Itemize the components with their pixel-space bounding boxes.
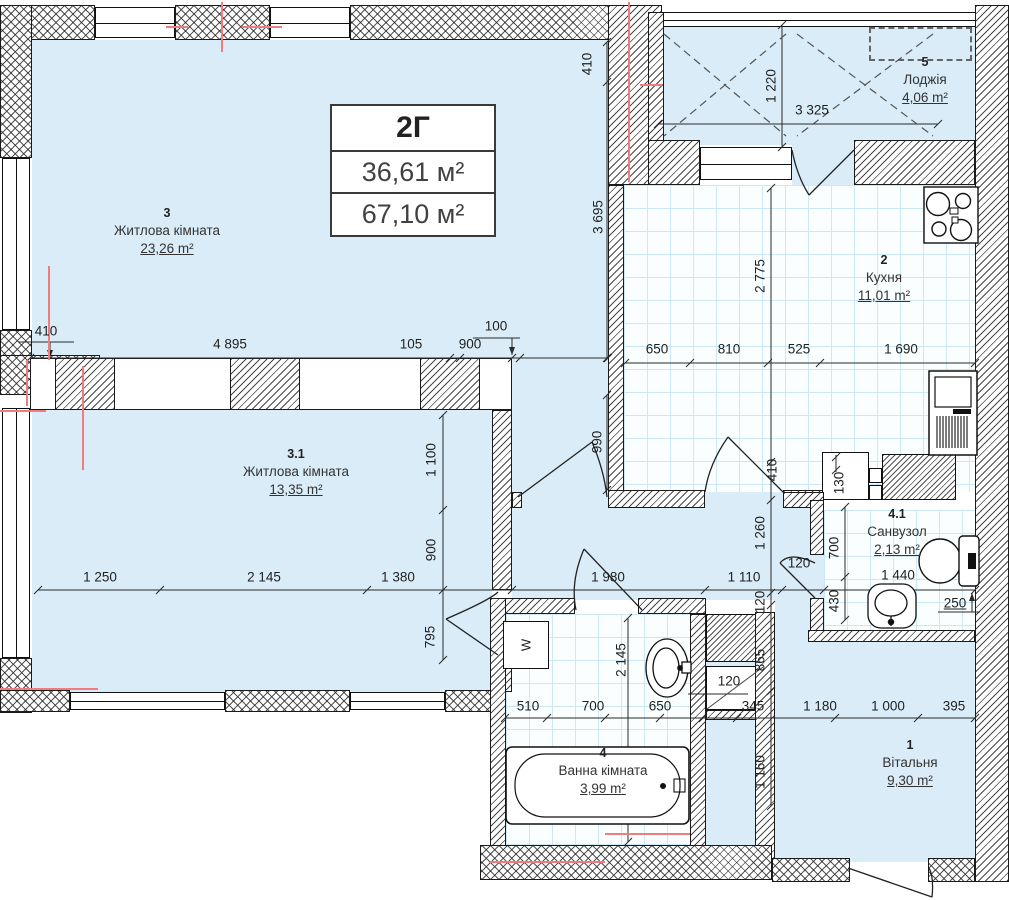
dim-label: 525 — [788, 342, 811, 357]
room-number: 4 — [558, 745, 647, 762]
toilet — [919, 536, 979, 586]
dim-label: 865 — [753, 649, 768, 672]
centerline-mark — [166, 26, 188, 28]
entrance-door — [848, 868, 933, 897]
dim-label: 1 100 — [424, 443, 439, 477]
centerline-mark — [640, 84, 662, 86]
centerline-mark — [628, 2, 630, 182]
total-area-value: 67,10 м² — [332, 194, 494, 235]
dim-label: 410 — [580, 53, 595, 76]
plan-linework — [0, 0, 1009, 900]
centerline-mark — [605, 833, 690, 835]
kitchen-appliance — [929, 371, 977, 455]
room-name: Житлова кімната — [243, 463, 349, 481]
room-area: 11,01 m² — [858, 287, 910, 305]
apartment-type-label: 2Г — [332, 106, 494, 152]
room-name: Кухня — [858, 269, 910, 287]
room-name: Санвузол — [867, 523, 927, 541]
centerline-mark — [0, 410, 46, 412]
room-area: 4,06 m² — [902, 89, 948, 107]
room-area: 13,35 m² — [243, 481, 349, 499]
room-number: 5 — [902, 54, 948, 71]
room-label-hall: 1 Вітальня 9,30 m² — [882, 737, 937, 790]
dim-label: 2 775 — [753, 259, 768, 293]
dim-label: 1 380 — [381, 570, 415, 585]
room-name: Лоджія — [902, 71, 948, 89]
dim-label: 1 690 — [884, 342, 918, 357]
room-3-1-door — [446, 592, 498, 655]
room-area: 3,99 m² — [558, 780, 647, 798]
dim-label: 345 — [742, 699, 765, 714]
dim-label: 130 — [832, 472, 847, 495]
room-number: 2 — [858, 252, 910, 269]
dim-label: 1 220 — [764, 69, 779, 103]
dim-label: 650 — [646, 342, 669, 357]
loggia-door — [792, 150, 854, 195]
room-number: 4.1 — [867, 506, 927, 523]
room-name: Вітальня — [882, 754, 937, 772]
dim-label: 1 440 — [881, 568, 915, 583]
title-block: 2Г 36,61 м² 67,10 м² — [330, 104, 496, 237]
dimension-lines — [18, 21, 980, 846]
dimension-ticks — [26, 21, 979, 846]
centerline-mark — [82, 366, 84, 470]
wc-sink — [868, 584, 916, 628]
room-number: 3 — [114, 205, 220, 222]
dim-label: 3 325 — [795, 103, 829, 118]
floor-plan: 410 4 895 105 900 100 650 810 525 1 690 … — [0, 0, 1009, 900]
dim-label: 395 — [943, 699, 966, 714]
dim-label: 105 — [400, 337, 423, 352]
room-area: 2,13 m² — [867, 541, 927, 559]
room-number: 3.1 — [243, 446, 349, 463]
centerline-mark — [242, 26, 282, 28]
room-label-wc: 4.1 Санвузол 2,13 m² — [867, 506, 927, 559]
dim-label: 795 — [423, 626, 438, 649]
centerline-mark — [0, 688, 98, 690]
bathroom-sink — [646, 639, 691, 697]
dim-label: 2 145 — [247, 570, 281, 585]
room-number: 1 — [882, 737, 937, 754]
dim-label: 1 180 — [803, 699, 837, 714]
stove — [924, 187, 978, 243]
dim-label: 120 — [753, 591, 768, 614]
dim-label: 1 250 — [83, 570, 117, 585]
dim-label: 250 — [944, 596, 967, 611]
washing-machine-label: W — [519, 639, 534, 651]
living-area-value: 36,61 м² — [332, 152, 494, 194]
centerline-mark — [48, 266, 50, 360]
dim-label: 1 980 — [591, 570, 625, 585]
dim-label: 100 — [485, 319, 508, 334]
dim-label: 430 — [827, 590, 842, 613]
room-label-3: 3 Житлова кімната 23,26 m² — [114, 205, 220, 258]
dim-label: 3 695 — [591, 200, 606, 234]
room-label-loggia: 5 Лоджія 4,06 m² — [902, 54, 948, 107]
centerline-mark — [490, 861, 605, 863]
room-area: 23,26 m² — [114, 240, 220, 258]
dim-label: 120 — [718, 674, 741, 689]
dim-label: 1 000 — [871, 699, 905, 714]
room-name: Ванна кімната — [558, 762, 647, 780]
room-label-kitchen: 2 Кухня 11,01 m² — [858, 252, 910, 305]
room-label-bathroom: 4 Ванна кімната 3,99 m² — [558, 745, 647, 798]
loggia-dashed-lines — [664, 34, 933, 136]
dim-label: 900 — [459, 337, 482, 352]
dim-label: 510 — [517, 699, 540, 714]
room-label-3-1: 3.1 Житлова кімната 13,35 m² — [243, 446, 349, 499]
dim-label: 4 895 — [213, 337, 247, 352]
dim-label: 810 — [718, 342, 741, 357]
dim-label: 1 260 — [753, 516, 768, 550]
dim-label: 2 145 — [614, 643, 629, 677]
dim-label: 1 110 — [728, 570, 761, 585]
room-area: 9,30 m² — [882, 772, 937, 790]
dim-label: 700 — [582, 699, 605, 714]
dim-label: 1 160 — [753, 755, 768, 789]
dim-label: 990 — [590, 431, 605, 454]
dim-label: 700 — [827, 537, 842, 560]
dim-label: 120 — [788, 556, 811, 571]
dim-label: 650 — [649, 699, 672, 714]
centerline-mark — [221, 2, 223, 52]
dim-label: 900 — [424, 539, 439, 562]
dim-label: 410 — [765, 459, 780, 482]
room-name: Житлова кімната — [114, 222, 220, 240]
dim-label: 410 — [35, 324, 58, 339]
centerline-mark — [26, 360, 28, 406]
